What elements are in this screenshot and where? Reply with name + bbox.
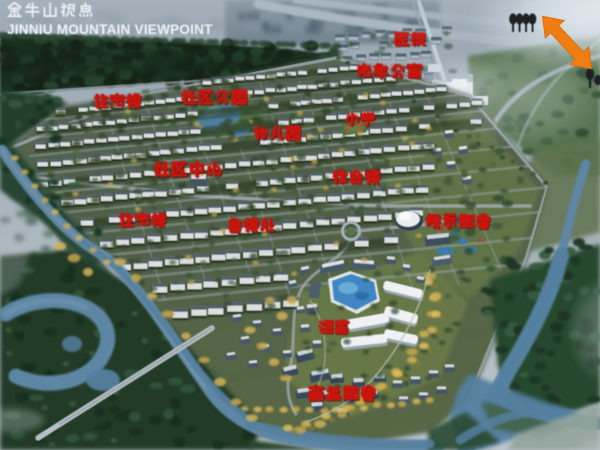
svg-text:JINNIU MOUNTAIN VIEWPOINT: JINNIU MOUNTAIN VIEWPOINT: [7, 22, 213, 37]
